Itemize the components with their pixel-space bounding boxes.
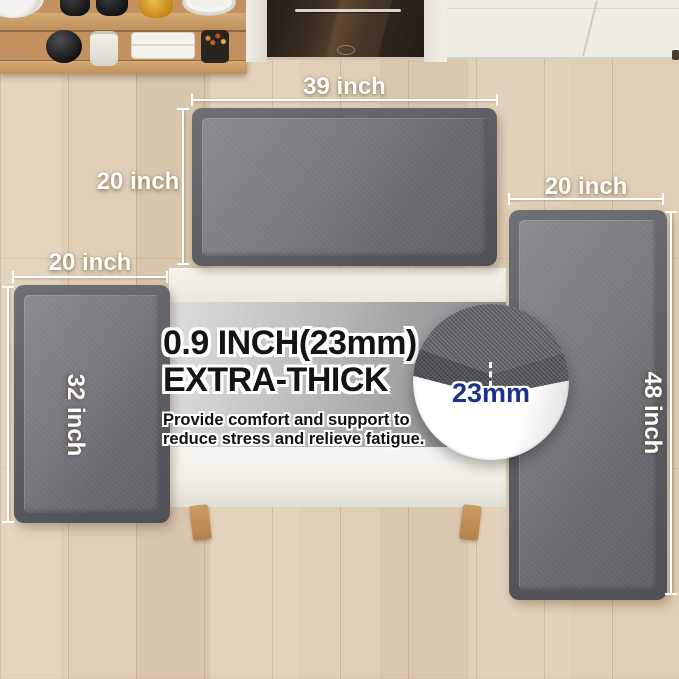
left-mat-width-label: 20 inch (48, 250, 132, 276)
dark-bottle (96, 0, 128, 16)
oven-glass-door (267, 0, 424, 60)
top-mat-width-arrow (192, 99, 497, 101)
right-mat-height-arrow (670, 212, 672, 594)
cabinet-pillar (246, 0, 267, 62)
oven-handle (295, 9, 401, 12)
left-mat-height-label: 32 inch (62, 370, 88, 460)
table-leg (189, 504, 212, 541)
right-mat-width-arrow (509, 198, 663, 200)
feature-headline-line1: 0.9 INCH(23mm) (163, 325, 438, 362)
oven (246, 0, 447, 62)
black-jar (46, 30, 82, 63)
right-mat-width-label: 20 inch (544, 174, 628, 200)
left-mat-surface (24, 295, 160, 513)
candy-jar (201, 30, 229, 63)
left-mat-width-arrow (13, 276, 167, 278)
folded-towels (131, 32, 195, 59)
top-mat-height-arrow (182, 109, 184, 264)
cabinet-base (447, 0, 679, 59)
feature-subtext-line2: reduce stress and relieve fatigue. (163, 430, 438, 448)
thickness-magnifier-circle: 23mm (413, 304, 569, 460)
top-mat-surface (202, 118, 487, 256)
left-mat-height-arrow (7, 287, 9, 522)
cabinet-pillar (424, 0, 447, 62)
thickness-value: 23mm (413, 380, 569, 407)
cabinet-seam (447, 8, 679, 9)
top-mat-height-label: 20 inch (96, 169, 180, 195)
oven-logo (337, 45, 355, 55)
product-image: 39 inch 20 inch 20 inch 32 inch 20 inch … (0, 0, 679, 679)
left-mat (14, 285, 170, 523)
feature-text-block: 0.9 INCH(23mm) EXTRA-THICK Provide comfo… (163, 325, 438, 448)
right-mat-height-label: 48 inch (639, 367, 665, 459)
dark-bottle (60, 0, 90, 16)
wall-shelf (0, 0, 247, 73)
white-jar (90, 31, 118, 66)
table-front-edge (169, 447, 506, 507)
cabinet-foot (672, 50, 679, 60)
top-mat-width-label: 39 inch (192, 74, 497, 100)
table-back-edge (169, 268, 506, 302)
top-mat (192, 108, 497, 266)
feature-headline-line2: EXTRA-THICK (163, 362, 438, 399)
feature-subtext-line1: Provide comfort and support to (163, 411, 438, 429)
